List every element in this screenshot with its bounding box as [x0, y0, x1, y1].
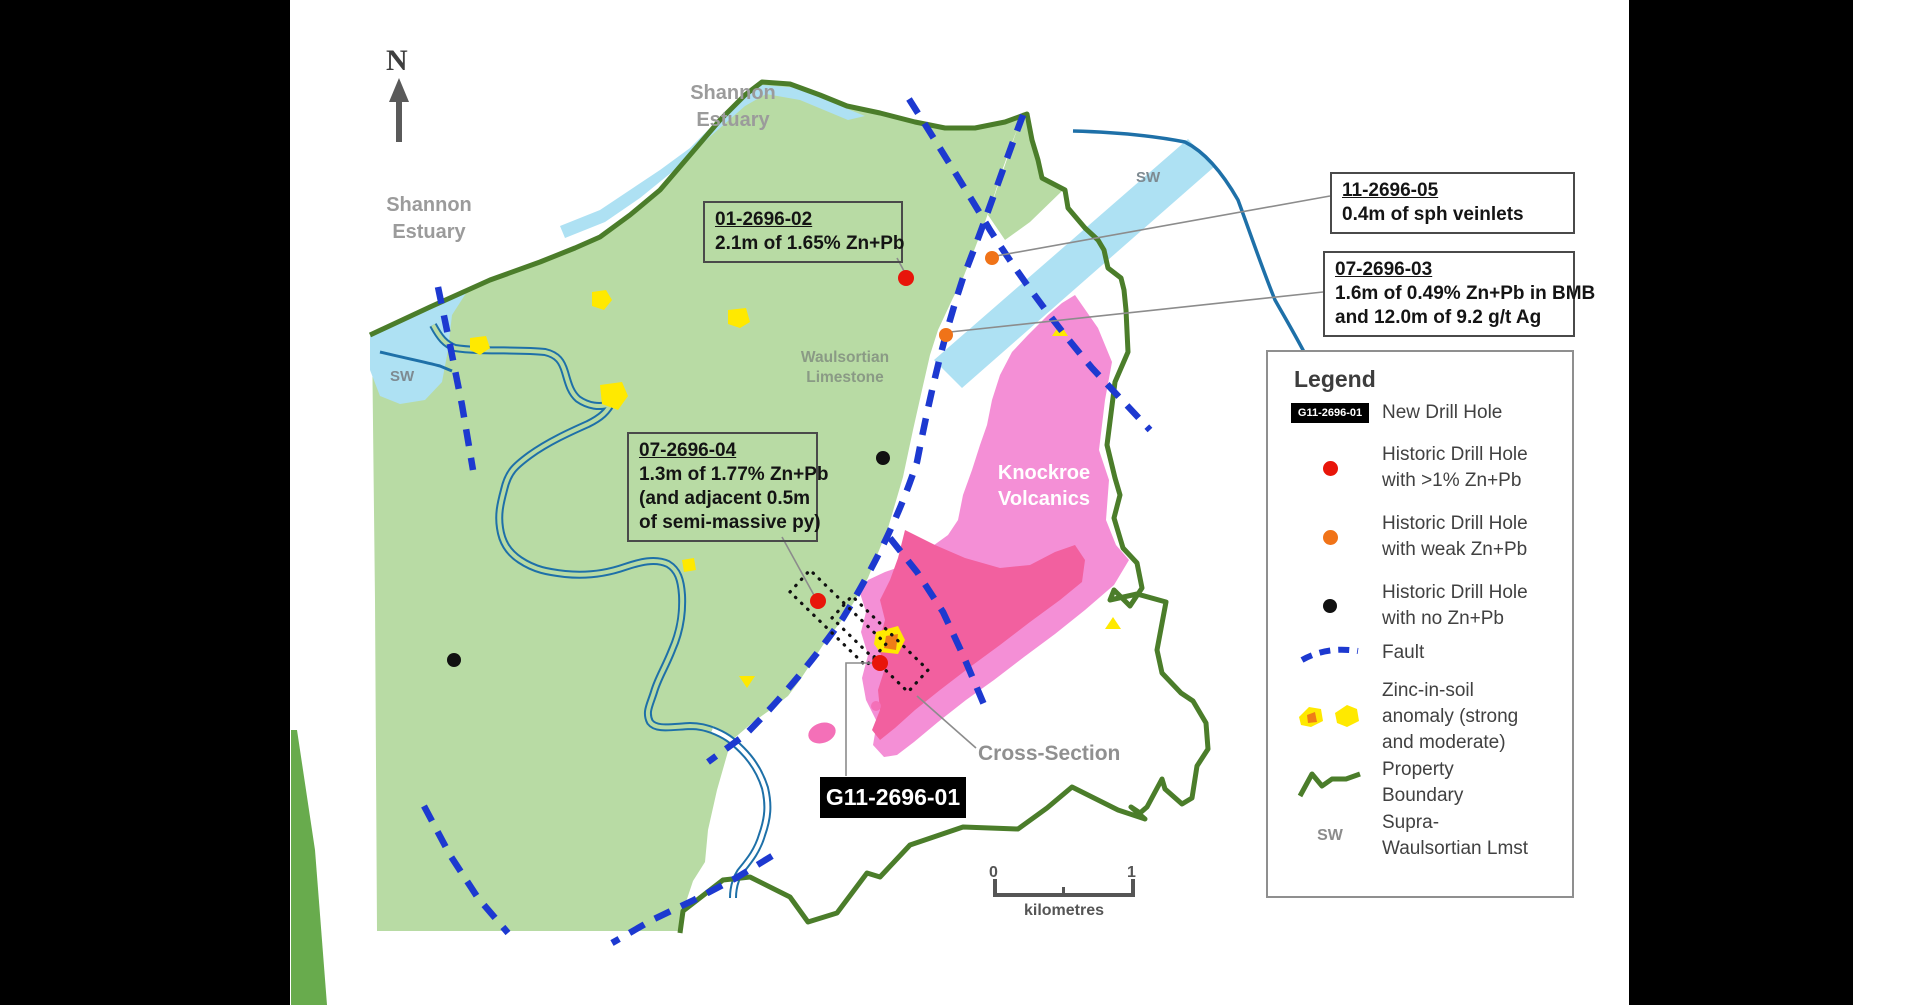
callout-id: 11-2696-05: [1342, 179, 1563, 203]
fault-line-icon: [1278, 641, 1382, 665]
callout-line: and 12.0m of 9.2 g/t Ag: [1335, 306, 1563, 330]
callout-11-2696-05: 11-2696-05 0.4m of sph veinlets: [1330, 172, 1575, 234]
red-dot-icon: [1278, 461, 1382, 476]
label-line: Knockroe: [974, 460, 1114, 486]
knockroe-volcanics-label: Knockroe Volcanics: [974, 460, 1114, 512]
label-line: Limestone: [775, 368, 915, 388]
legend-item-supra-waulsortian: SW Supra- Waulsortian Lmst: [1278, 810, 1566, 862]
new-drill-hole-chip-icon: G11-2696-01: [1278, 403, 1382, 423]
map-figure: N Shannon Estuary Shannon Estuary SW SW …: [0, 0, 1920, 1005]
legend-label-line: Supra-: [1382, 810, 1566, 836]
volcanics-outlier-blob: [806, 719, 839, 747]
orange-dot-icon: [1278, 530, 1382, 545]
new-drill-hole-label: G11-2696-01: [820, 777, 966, 818]
north-label: N: [386, 44, 408, 78]
legend-item-orange-drill-hole: Historic Drill Hole with weak Zn+Pb: [1278, 511, 1566, 563]
callout-line: 2.1m of 1.65% Zn+Pb: [715, 232, 891, 256]
legend-label-line: with >1% Zn+Pb: [1382, 468, 1566, 494]
sw-symbol-text: SW: [1317, 827, 1343, 845]
waulsortian-limestone-label: Waulsortian Limestone: [775, 348, 915, 388]
property-boundary-icon: [1278, 766, 1382, 800]
callout-id: 01-2696-02: [715, 208, 891, 232]
legend-label-line: and moderate): [1382, 730, 1566, 756]
legend-label-line: Boundary: [1382, 783, 1566, 809]
legend-item-black-drill-hole: Historic Drill Hole with no Zn+Pb: [1278, 580, 1566, 632]
legend-label-line: Historic Drill Hole: [1382, 580, 1566, 606]
legend-label-line: Historic Drill Hole: [1382, 511, 1566, 537]
callout-line: 1.6m of 0.49% Zn+Pb in BMB: [1335, 282, 1563, 306]
letterbox-right: [1629, 0, 1853, 1005]
legend-item-zinc-anomaly: Zinc-in-soil anomaly (strong and moderat…: [1278, 678, 1566, 756]
callout-id: 07-2696-04: [639, 439, 806, 463]
legend-item-new-drill-hole: G11-2696-01 New Drill Hole: [1278, 400, 1566, 426]
legend: Legend G11-2696-01 New Drill Hole Histor…: [1266, 350, 1574, 898]
legend-label-line: Waulsortian Lmst: [1382, 836, 1566, 862]
legend-label-line: Historic Drill Hole: [1382, 442, 1566, 468]
callout-01-2696-02: 01-2696-02 2.1m of 1.65% Zn+Pb: [703, 201, 903, 263]
legend-title: Legend: [1294, 366, 1376, 393]
cross-section-label: Cross-Section: [978, 742, 1120, 766]
boundary-wedge: [291, 730, 327, 1005]
zinc-anomaly-strong-core: [884, 634, 898, 650]
shannon-estuary-label-top: Shannon Estuary: [662, 80, 804, 134]
scale-unit: kilometres: [993, 902, 1135, 920]
label-line: Estuary: [358, 219, 500, 246]
label-line: Volcanics: [974, 486, 1114, 512]
sw-text-icon: SW: [1278, 827, 1382, 845]
callout-line: (and adjacent 0.5m: [639, 487, 806, 511]
legend-label-line: Property: [1382, 757, 1566, 783]
label-line: Shannon: [662, 80, 804, 107]
legend-label-line: New Drill Hole: [1382, 400, 1566, 426]
zinc-anomaly-icon: [1278, 701, 1382, 733]
callout-line: 1.3m of 1.77% Zn+Pb: [639, 463, 806, 487]
legend-item-red-drill-hole: Historic Drill Hole with >1% Zn+Pb: [1278, 442, 1566, 494]
legend-label-line: with weak Zn+Pb: [1382, 537, 1566, 563]
shannon-estuary-label-left: Shannon Estuary: [358, 192, 500, 246]
callout-line: of semi-massive py): [639, 511, 806, 535]
sw-label-west: SW: [390, 368, 414, 385]
legend-label-line: anomaly (strong: [1382, 704, 1566, 730]
callout-line: 0.4m of sph veinlets: [1342, 203, 1563, 227]
chip-text: G11-2696-01: [1291, 403, 1369, 423]
letterbox-left: [0, 0, 290, 1005]
legend-item-property-boundary: Property Boundary: [1278, 757, 1566, 809]
legend-label-line: with no Zn+Pb: [1382, 606, 1566, 632]
volcanics-outlier-dot: [871, 701, 881, 711]
north-arrow-icon: [389, 78, 409, 142]
legend-label-line: Zinc-in-soil: [1382, 678, 1566, 704]
label-line: Estuary: [662, 107, 804, 134]
legend-label-line: Fault: [1382, 640, 1566, 666]
black-dot-icon: [1278, 599, 1382, 613]
callout-id: 07-2696-03: [1335, 258, 1563, 282]
legend-item-fault: Fault: [1278, 640, 1566, 666]
label-line: Shannon: [358, 192, 500, 219]
label-line: Waulsortian: [775, 348, 915, 368]
callout-07-2696-04: 07-2696-04 1.3m of 1.77% Zn+Pb (and adja…: [627, 432, 818, 542]
scale-line: [993, 893, 1135, 897]
sw-label-east: SW: [1136, 169, 1160, 186]
callout-07-2696-03: 07-2696-03 1.6m of 0.49% Zn+Pb in BMB an…: [1323, 251, 1575, 337]
